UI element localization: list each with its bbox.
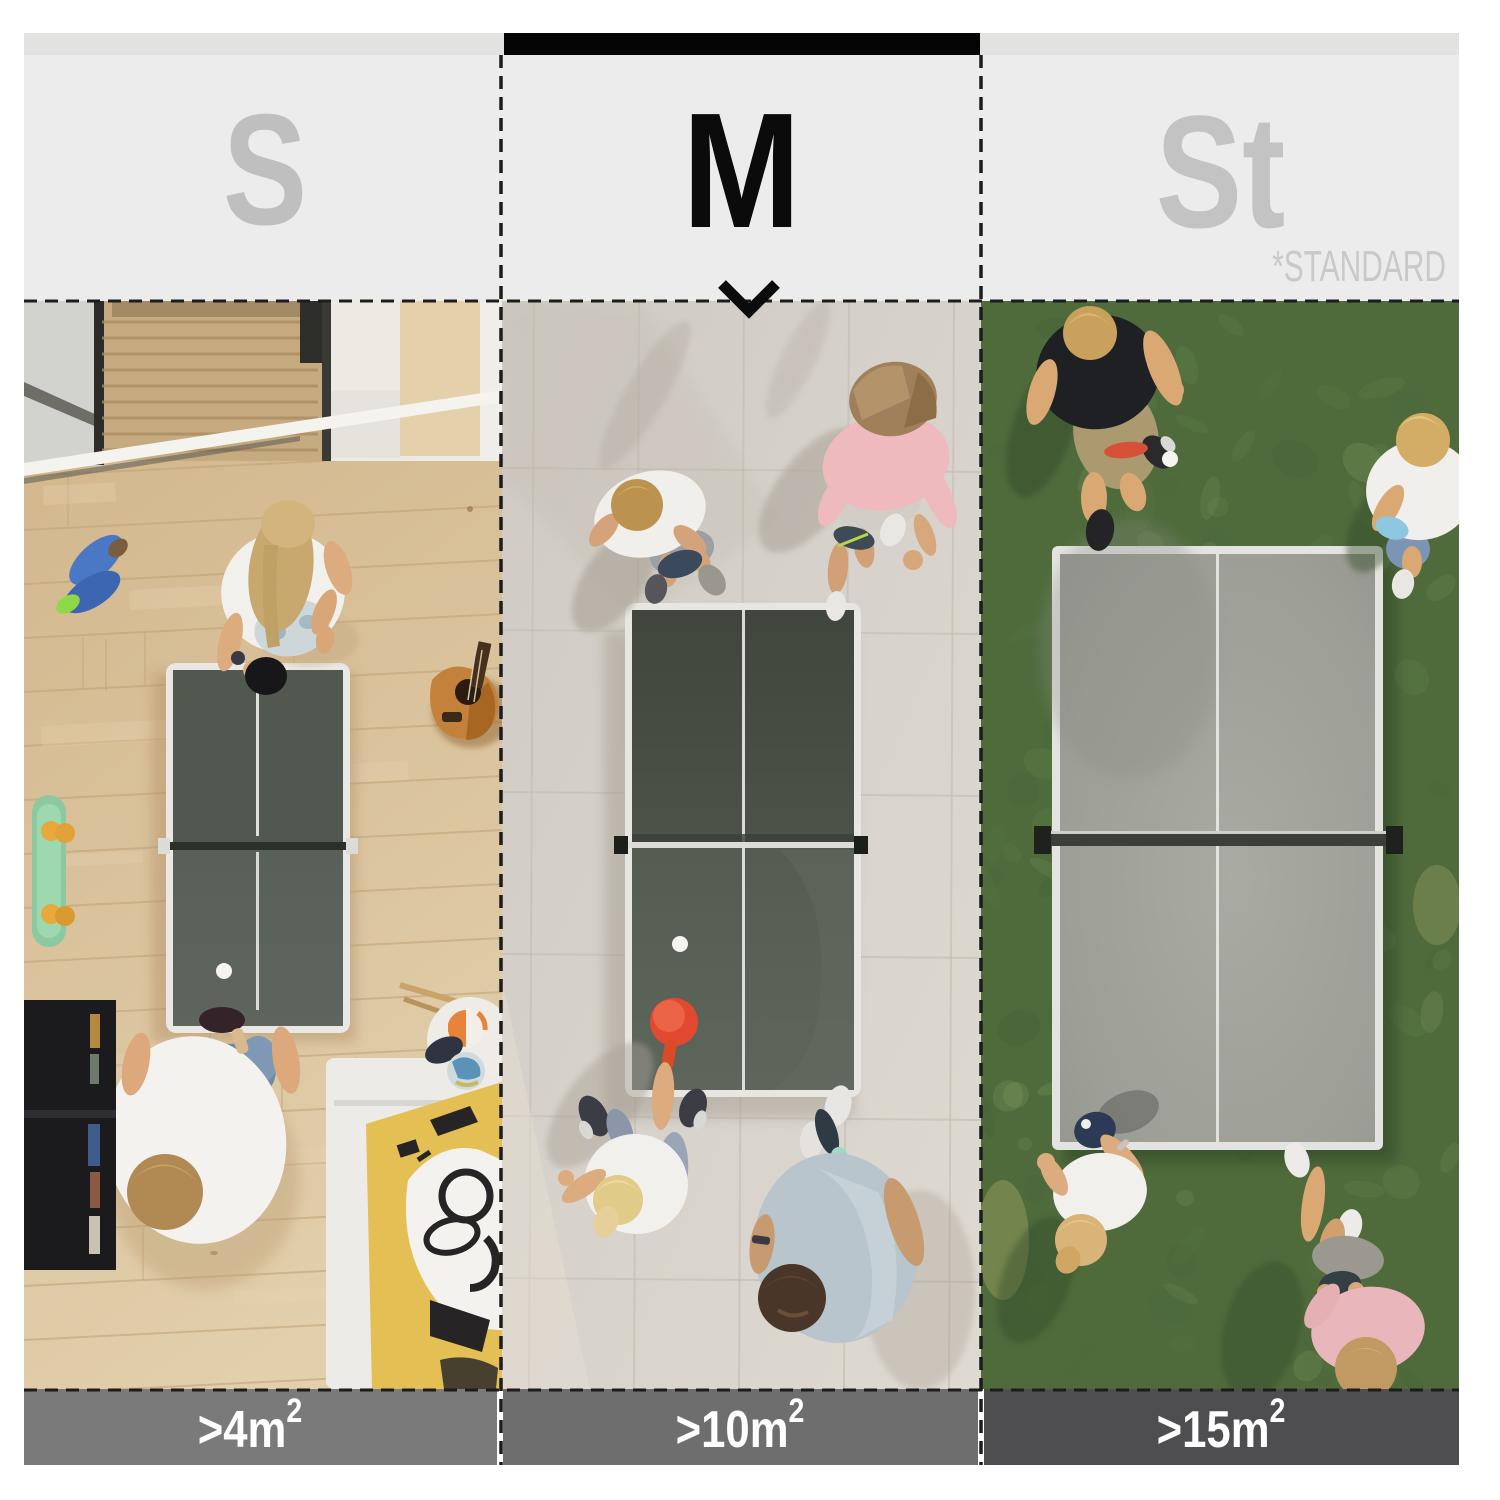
svg-text:St: St — [1156, 82, 1286, 261]
svg-text:*STANDARD: *STANDARD — [1272, 241, 1446, 290]
svg-text:S: S — [223, 82, 307, 259]
svg-text:M: M — [682, 78, 800, 262]
svg-text:>10m2: >10m2 — [676, 1392, 805, 1459]
svg-text:>15m2: >15m2 — [1157, 1392, 1286, 1459]
